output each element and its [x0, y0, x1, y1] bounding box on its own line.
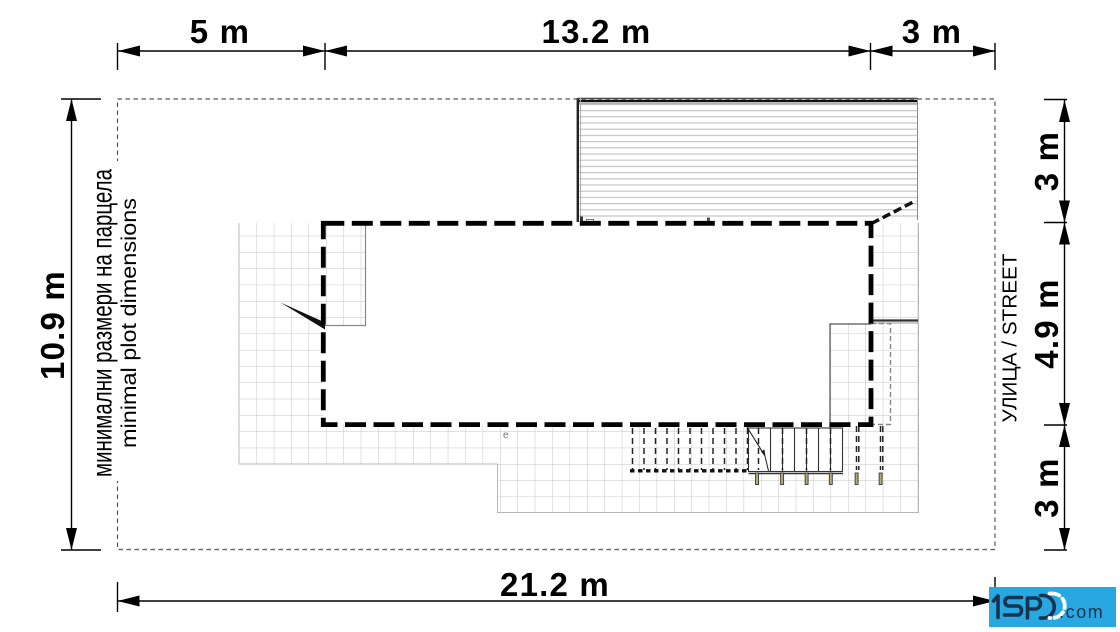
svg-text:13.2 m: 13.2 m — [542, 13, 652, 50]
svg-text:3 m: 3 m — [1028, 131, 1065, 191]
svg-text:e: e — [503, 430, 509, 441]
svg-text:3 m: 3 m — [902, 13, 962, 50]
svg-text:минимални размери на парцела: минимални размери на парцела — [87, 169, 118, 477]
svg-text:3 m: 3 m — [1028, 457, 1065, 517]
svg-text:minimal plot dimensions: minimal plot dimensions — [117, 198, 141, 448]
svg-text:10.9 m: 10.9 m — [34, 270, 71, 380]
svg-text:.com: .com — [1059, 602, 1104, 622]
svg-text:УЛИЦА / STREET: УЛИЦА / STREET — [1000, 254, 1022, 423]
svg-text:5 m: 5 m — [190, 13, 250, 50]
svg-text:4.9 m: 4.9 m — [1028, 278, 1065, 368]
svg-text:21.2 m: 21.2 m — [500, 566, 610, 603]
